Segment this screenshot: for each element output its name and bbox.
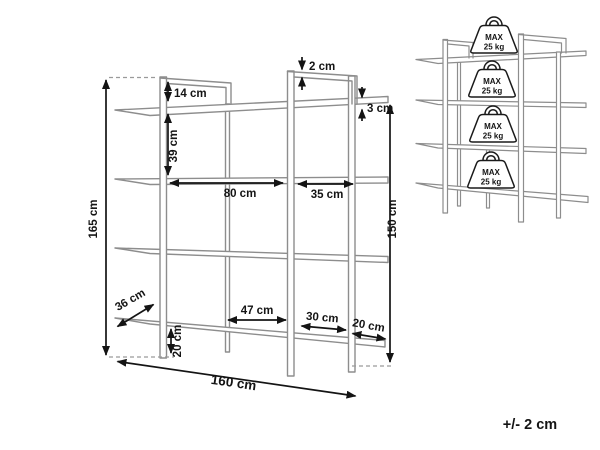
label-bottom-span-mid: 30 cm	[305, 311, 339, 326]
main-shelf-1	[115, 97, 388, 116]
mini-left-post	[443, 40, 448, 214]
label-shelf-gap: 39 cm	[168, 130, 180, 163]
weight-icon-4: MAX 25 kg	[468, 152, 514, 188]
mini-center-post	[519, 34, 524, 222]
main-center-post	[288, 71, 295, 376]
weight-max-label: MAX	[483, 77, 501, 86]
shelving-diagram-svg: 165 cm 14 cm 39 cm 2 cm 3 cm 80 cm 35 cm…	[0, 0, 600, 450]
main-shelf-4	[115, 318, 385, 347]
label-left-bay-width: 80 cm	[224, 188, 257, 200]
label-shelf-thickness: 3 cm	[367, 103, 393, 115]
main-shelf-drawing	[115, 71, 388, 376]
tolerance-note: +/- 2 cm	[503, 417, 557, 433]
label-leg-height: 20 cm	[172, 325, 184, 358]
main-left-post	[160, 77, 167, 358]
weight-capacity-label: 25 kg	[482, 87, 503, 96]
weight-capacity-label: 25 kg	[483, 132, 504, 141]
label-right-bay-width: 35 cm	[311, 189, 344, 201]
weight-max-label: MAX	[485, 33, 503, 42]
dimension-diagram-page: 165 cm 14 cm 39 cm 2 cm 3 cm 80 cm 35 cm…	[0, 0, 600, 450]
weight-icon-1: MAX 25 kg	[471, 17, 517, 53]
label-right-height: 150 cm	[387, 199, 399, 238]
weight-max-label: MAX	[482, 168, 500, 177]
label-frame-thickness: 2 cm	[309, 61, 335, 73]
label-shelf-depth: 36 cm	[113, 287, 147, 314]
mini-right-post	[557, 52, 561, 218]
mini-right-hoop	[519, 35, 567, 54]
label-bottom-span-right: 20 cm	[351, 317, 385, 334]
weight-capacity-label: 25 kg	[484, 43, 505, 52]
label-overall-height: 165 cm	[88, 199, 100, 238]
mini-right-hoop-inner	[524, 40, 562, 54]
main-rear-leg	[226, 104, 230, 352]
weight-icon-2: MAX 25 kg	[469, 61, 515, 97]
mini-left-hoop-inner	[448, 44, 470, 58]
main-shelf-3	[115, 248, 388, 263]
weight-max-label: MAX	[484, 122, 502, 131]
weight-icon-3: MAX 25 kg	[470, 106, 516, 142]
mini-rear-leg-1	[458, 60, 461, 206]
label-top-frame-height: 14 cm	[174, 88, 207, 100]
weight-capacity-label: 25 kg	[481, 178, 502, 187]
label-overall-width: 160 cm	[210, 372, 257, 393]
label-bottom-span-left: 47 cm	[241, 305, 274, 317]
